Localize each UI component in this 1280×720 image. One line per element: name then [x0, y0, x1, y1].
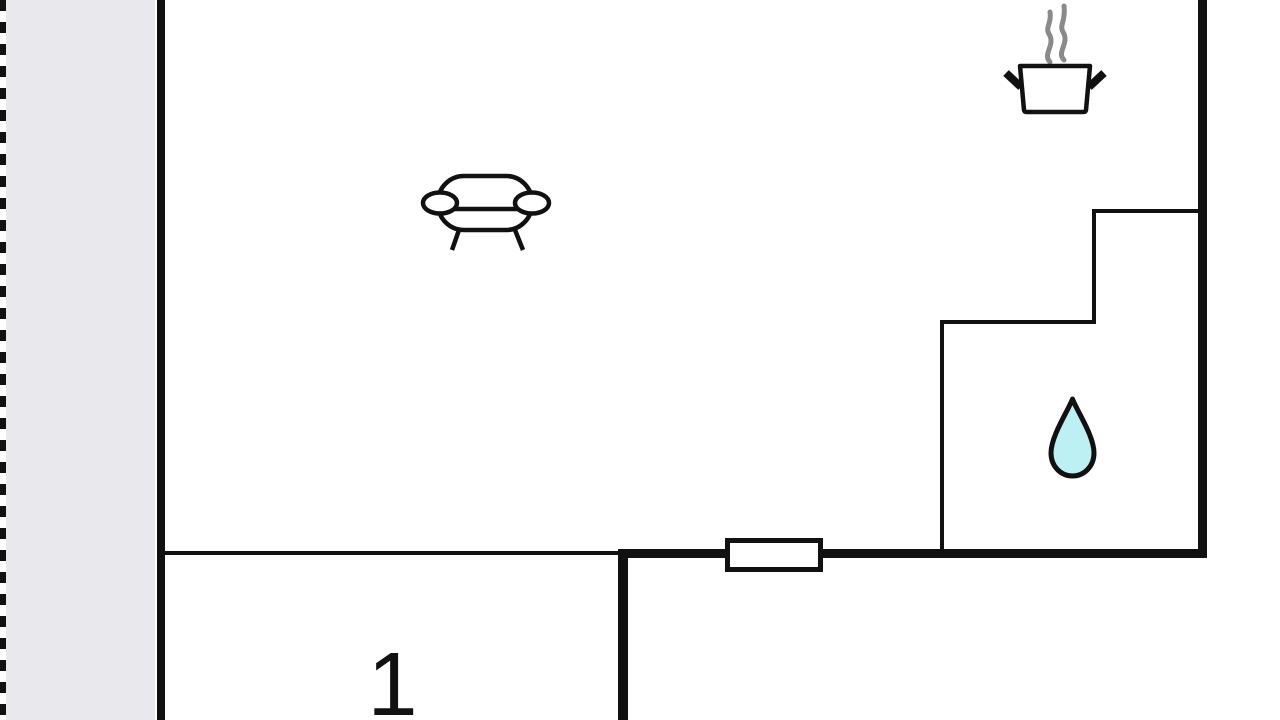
wall-left: [157, 0, 165, 720]
bathroom-wall-top: [1092, 209, 1198, 213]
bathroom-wall-step-horizontal: [940, 320, 1096, 324]
sofa-leg-right: [515, 230, 523, 250]
pot-body: [1020, 66, 1090, 112]
sofa-leg-left: [452, 230, 459, 250]
steam-line-left: [1047, 12, 1051, 62]
water-drop-shape: [1051, 399, 1094, 476]
bathroom-wall-left: [940, 320, 944, 553]
sofa-icon: [422, 174, 550, 250]
sofa-armrest-right: [515, 193, 549, 214]
terrace-area: [6, 0, 155, 720]
floor-plan: 1: [0, 0, 1280, 720]
wall-room1-top-thin: [165, 551, 622, 555]
steam-icon: [1047, 6, 1065, 62]
wall-room1-right: [618, 549, 628, 720]
wall-bottom: [618, 549, 1207, 558]
steam-line-right: [1061, 6, 1065, 60]
wall-right: [1198, 0, 1207, 558]
water-drop-icon: [1048, 396, 1098, 482]
sofa-armrest-left: [423, 193, 457, 214]
room-number-label: 1: [337, 640, 448, 720]
cooking-pot-icon: [1000, 4, 1110, 116]
bathroom-wall-step-vertical: [1092, 209, 1096, 324]
window-symbol: [725, 538, 823, 572]
